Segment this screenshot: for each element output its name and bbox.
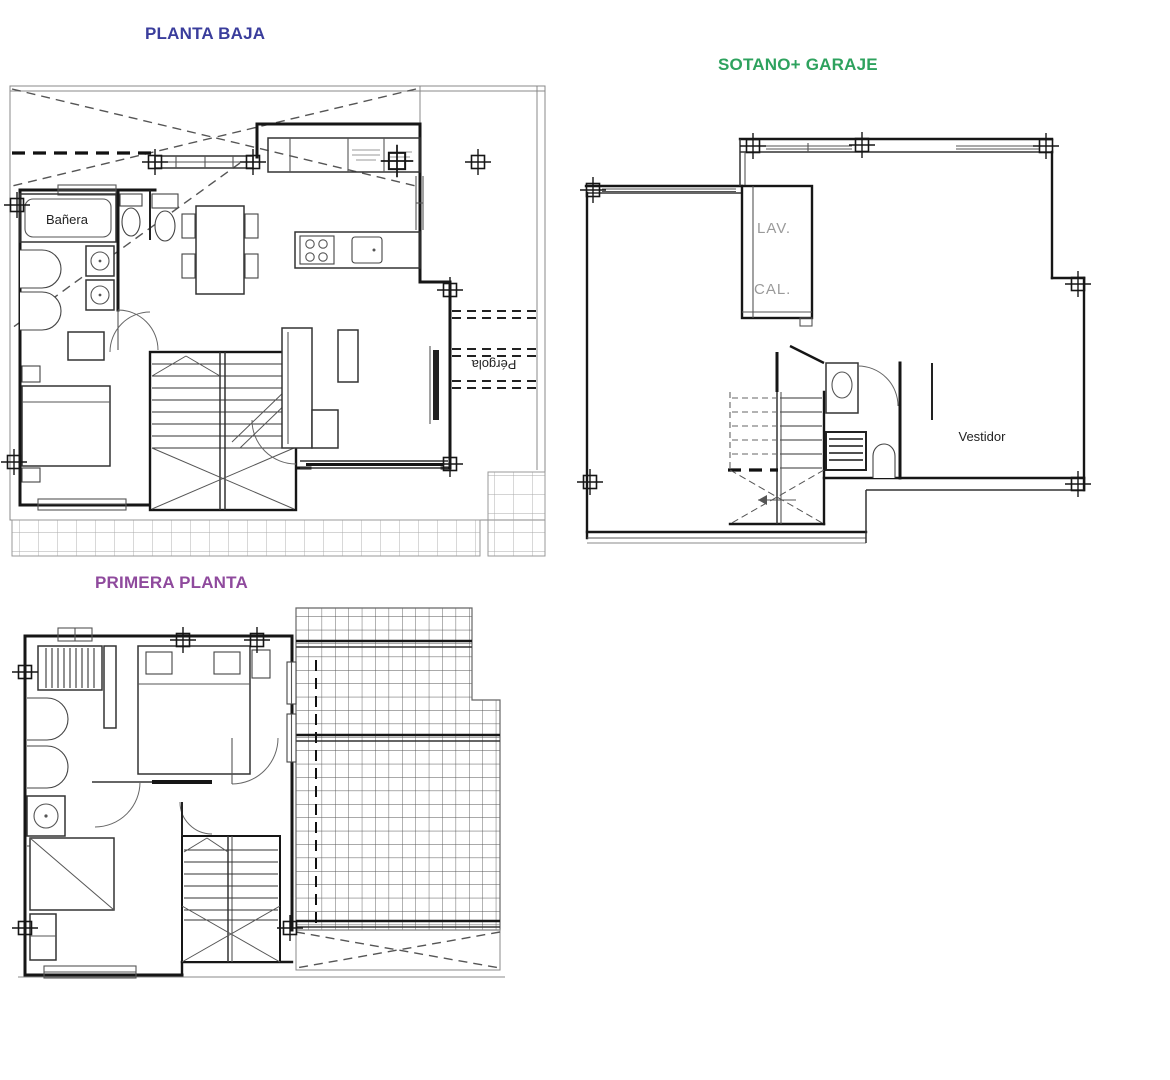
toilet bbox=[120, 194, 142, 236]
bedroom-bed bbox=[22, 332, 110, 482]
second-bed bbox=[30, 838, 114, 960]
pergola-label: Pérgola bbox=[471, 357, 517, 372]
basement-walls bbox=[586, 139, 1084, 543]
bath-wardrobe bbox=[20, 250, 61, 330]
window-living-south bbox=[300, 461, 448, 468]
window-north bbox=[155, 156, 253, 168]
wardrobe bbox=[38, 646, 102, 690]
master-bed bbox=[138, 646, 270, 774]
staircase bbox=[150, 352, 296, 510]
boiler-label: CAL. bbox=[754, 281, 791, 298]
tv-unit bbox=[430, 346, 439, 424]
laundry-label: LAV. bbox=[757, 220, 791, 237]
closet-partition bbox=[104, 646, 116, 728]
floor-plan-canvas: Bañera bbox=[0, 0, 1170, 1080]
pergola-beams bbox=[452, 311, 537, 388]
basement-plan: LAV. CAL. bbox=[577, 132, 1091, 543]
door-arcs-hall bbox=[110, 310, 158, 352]
laundry-boiler-closet bbox=[742, 186, 812, 326]
wc-toilet bbox=[152, 194, 178, 241]
window-bedroom-south bbox=[38, 499, 126, 510]
dining-table bbox=[182, 206, 258, 294]
sofa bbox=[282, 328, 358, 448]
first-floor-staircase bbox=[180, 802, 280, 962]
first-floor-plan bbox=[12, 608, 505, 978]
basement-staircase bbox=[728, 352, 824, 524]
bathtub-label: Bañera bbox=[46, 212, 89, 227]
kitchen-island bbox=[295, 232, 420, 268]
bathroom-sinks bbox=[86, 246, 114, 310]
dressing-room-label: Vestidor bbox=[959, 429, 1007, 444]
roof-pergola-grid bbox=[296, 608, 500, 930]
closet-arcs bbox=[27, 698, 68, 788]
ground-floor-plan: Bañera bbox=[1, 86, 545, 556]
floor-plan-sheet: PLANTA BAJA SOTANO+ GARAJE PRIMERA PLANT… bbox=[0, 0, 1170, 1080]
